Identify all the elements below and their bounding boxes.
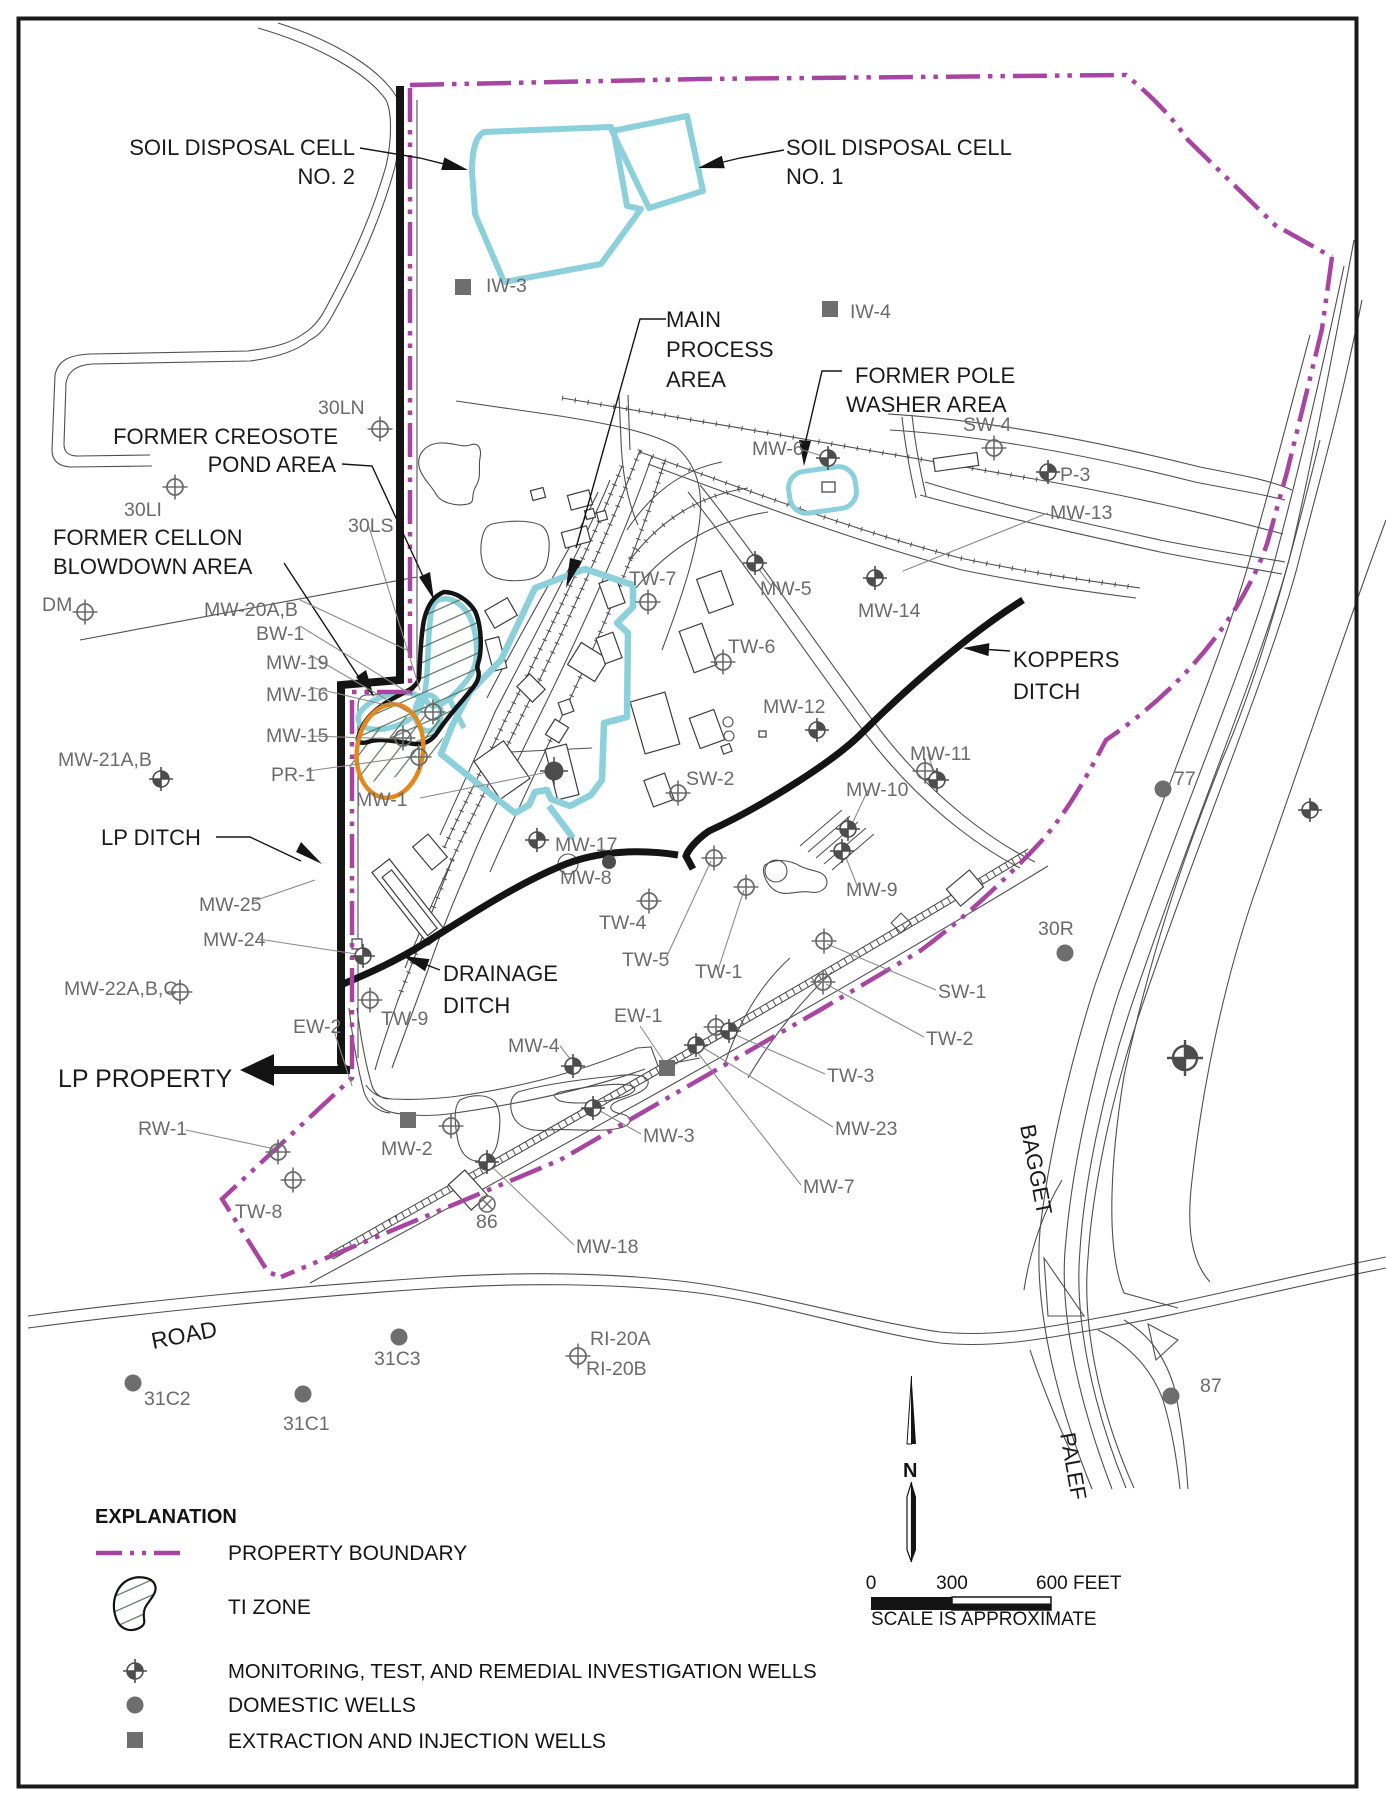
svg-text:POND AREA: POND AREA	[208, 452, 337, 477]
svg-text:DITCH: DITCH	[443, 993, 510, 1018]
svg-text:P-3: P-3	[1060, 464, 1090, 486]
svg-text:MW-4: MW-4	[508, 1035, 560, 1057]
svg-text:MW-20A,B: MW-20A,B	[204, 599, 298, 621]
svg-text:RI-20B: RI-20B	[586, 1358, 647, 1380]
svg-text:MW-5: MW-5	[760, 578, 812, 600]
svg-text:NO. 2: NO. 2	[298, 164, 355, 189]
svg-text:30LS: 30LS	[348, 515, 394, 537]
svg-text:MONITORING, TEST, AND REMEDIAL: MONITORING, TEST, AND REMEDIAL INVESTIGA…	[228, 1661, 817, 1683]
svg-text:MW-7: MW-7	[803, 1176, 855, 1198]
svg-text:MW-14: MW-14	[858, 600, 921, 622]
svg-text:BLOWDOWN AREA: BLOWDOWN AREA	[53, 554, 253, 579]
svg-text:DRAINAGE: DRAINAGE	[443, 961, 558, 986]
svg-text:IW-3: IW-3	[486, 275, 527, 297]
svg-text:DITCH: DITCH	[1013, 679, 1080, 704]
svg-text:DM: DM	[42, 594, 72, 616]
svg-text:TW-8: TW-8	[235, 1201, 282, 1223]
svg-text:TW-7: TW-7	[629, 568, 676, 590]
svg-text:MW-25: MW-25	[199, 894, 262, 916]
svg-text:31C3: 31C3	[374, 1348, 421, 1370]
svg-text:MW-23: MW-23	[835, 1118, 897, 1140]
svg-text:MW-24: MW-24	[203, 929, 266, 951]
svg-text:SW-4: SW-4	[963, 414, 1012, 436]
svg-text:TI ZONE: TI ZONE	[228, 1596, 311, 1619]
svg-text:N: N	[903, 1460, 917, 1482]
svg-text:300: 300	[936, 1573, 968, 1594]
svg-text:30LN: 30LN	[318, 397, 365, 419]
svg-text:TW-2: TW-2	[926, 1028, 973, 1050]
svg-text:LP DITCH: LP DITCH	[101, 825, 201, 850]
svg-text:PR-1: PR-1	[271, 764, 315, 786]
svg-text:SOIL DISPOSAL CELL: SOIL DISPOSAL CELL	[129, 135, 355, 160]
svg-text:MW-12: MW-12	[763, 696, 825, 718]
svg-text:AREA: AREA	[666, 367, 726, 392]
svg-text:EXPLANATION: EXPLANATION	[95, 1506, 237, 1528]
svg-text:TW-6: TW-6	[728, 636, 775, 658]
svg-text:EW-1: EW-1	[614, 1005, 662, 1027]
svg-text:MW-10: MW-10	[846, 779, 909, 801]
svg-text:MW-21A,B: MW-21A,B	[58, 749, 152, 771]
svg-text:MW-9: MW-9	[846, 879, 898, 901]
svg-text:MW-11: MW-11	[910, 743, 971, 765]
svg-text:SOIL DISPOSAL CELL: SOIL DISPOSAL CELL	[786, 135, 1012, 160]
svg-text:MW-6: MW-6	[752, 438, 804, 460]
svg-text:TW-3: TW-3	[827, 1065, 874, 1087]
svg-text:TW-1: TW-1	[695, 961, 742, 983]
svg-text:KOPPERS: KOPPERS	[1013, 647, 1119, 672]
svg-text:87: 87	[1200, 1375, 1222, 1397]
svg-text:SW-2: SW-2	[686, 768, 734, 790]
svg-text:EW-2: EW-2	[293, 1016, 341, 1038]
svg-text:MW-2: MW-2	[381, 1138, 433, 1160]
svg-text:MW-3: MW-3	[643, 1125, 695, 1147]
svg-text:MW-1: MW-1	[356, 789, 408, 811]
svg-text:FORMER CELLON: FORMER CELLON	[53, 525, 242, 550]
svg-text:31C2: 31C2	[144, 1388, 191, 1410]
svg-text:RW-1: RW-1	[138, 1118, 187, 1140]
svg-text:0: 0	[866, 1573, 877, 1594]
svg-text:30R: 30R	[1038, 918, 1074, 940]
svg-text:MW-18: MW-18	[576, 1236, 638, 1258]
svg-text:SW-1: SW-1	[938, 981, 986, 1003]
svg-text:FORMER POLE: FORMER POLE	[855, 363, 1015, 388]
svg-text:EXTRACTION AND INJECTION WELLS: EXTRACTION AND INJECTION WELLS	[228, 1730, 606, 1753]
svg-text:LP PROPERTY: LP PROPERTY	[58, 1065, 232, 1093]
svg-text:PROPERTY BOUNDARY: PROPERTY BOUNDARY	[228, 1542, 467, 1565]
svg-text:MW-17: MW-17	[555, 834, 617, 856]
svg-text:MW-16: MW-16	[266, 684, 328, 706]
svg-text:MW-15: MW-15	[266, 725, 329, 747]
svg-text:TW-9: TW-9	[381, 1008, 428, 1030]
svg-text:MW-19: MW-19	[266, 652, 328, 674]
svg-text:MW-8: MW-8	[560, 867, 612, 889]
svg-text:IW-4: IW-4	[850, 301, 891, 323]
svg-text:TW-4: TW-4	[599, 912, 646, 934]
svg-text:SCALE IS APPROXIMATE: SCALE IS APPROXIMATE	[871, 1609, 1097, 1630]
svg-text:86: 86	[476, 1211, 498, 1233]
svg-text:30LI: 30LI	[124, 499, 162, 521]
svg-text:MW-13: MW-13	[1050, 502, 1112, 524]
svg-text:DOMESTIC WELLS: DOMESTIC WELLS	[228, 1694, 416, 1717]
svg-text:77: 77	[1174, 768, 1196, 790]
svg-text:MW-22A,B,C: MW-22A,B,C	[64, 978, 177, 1000]
svg-text:FORMER CREOSOTE: FORMER CREOSOTE	[113, 424, 338, 449]
svg-text:TW-5: TW-5	[622, 949, 669, 971]
svg-text:RI-20A: RI-20A	[590, 1328, 651, 1350]
svg-text:31C1: 31C1	[283, 1413, 330, 1435]
svg-text:600 FEET: 600 FEET	[1036, 1573, 1122, 1594]
svg-text:NO. 1: NO. 1	[786, 164, 843, 189]
svg-text:MAIN: MAIN	[666, 307, 721, 332]
svg-text:BW-1: BW-1	[256, 623, 304, 645]
svg-text:PROCESS: PROCESS	[666, 337, 774, 362]
